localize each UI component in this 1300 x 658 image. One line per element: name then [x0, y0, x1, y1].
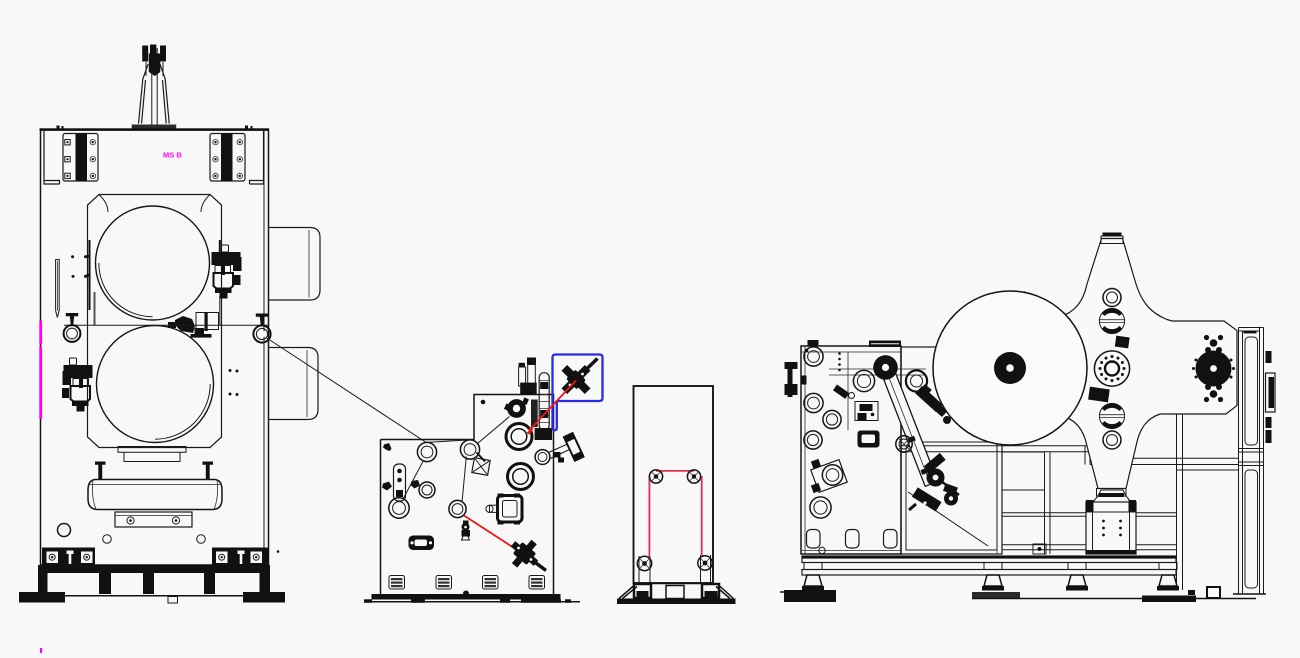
svg-text:MS B: MS B — [163, 151, 182, 160]
